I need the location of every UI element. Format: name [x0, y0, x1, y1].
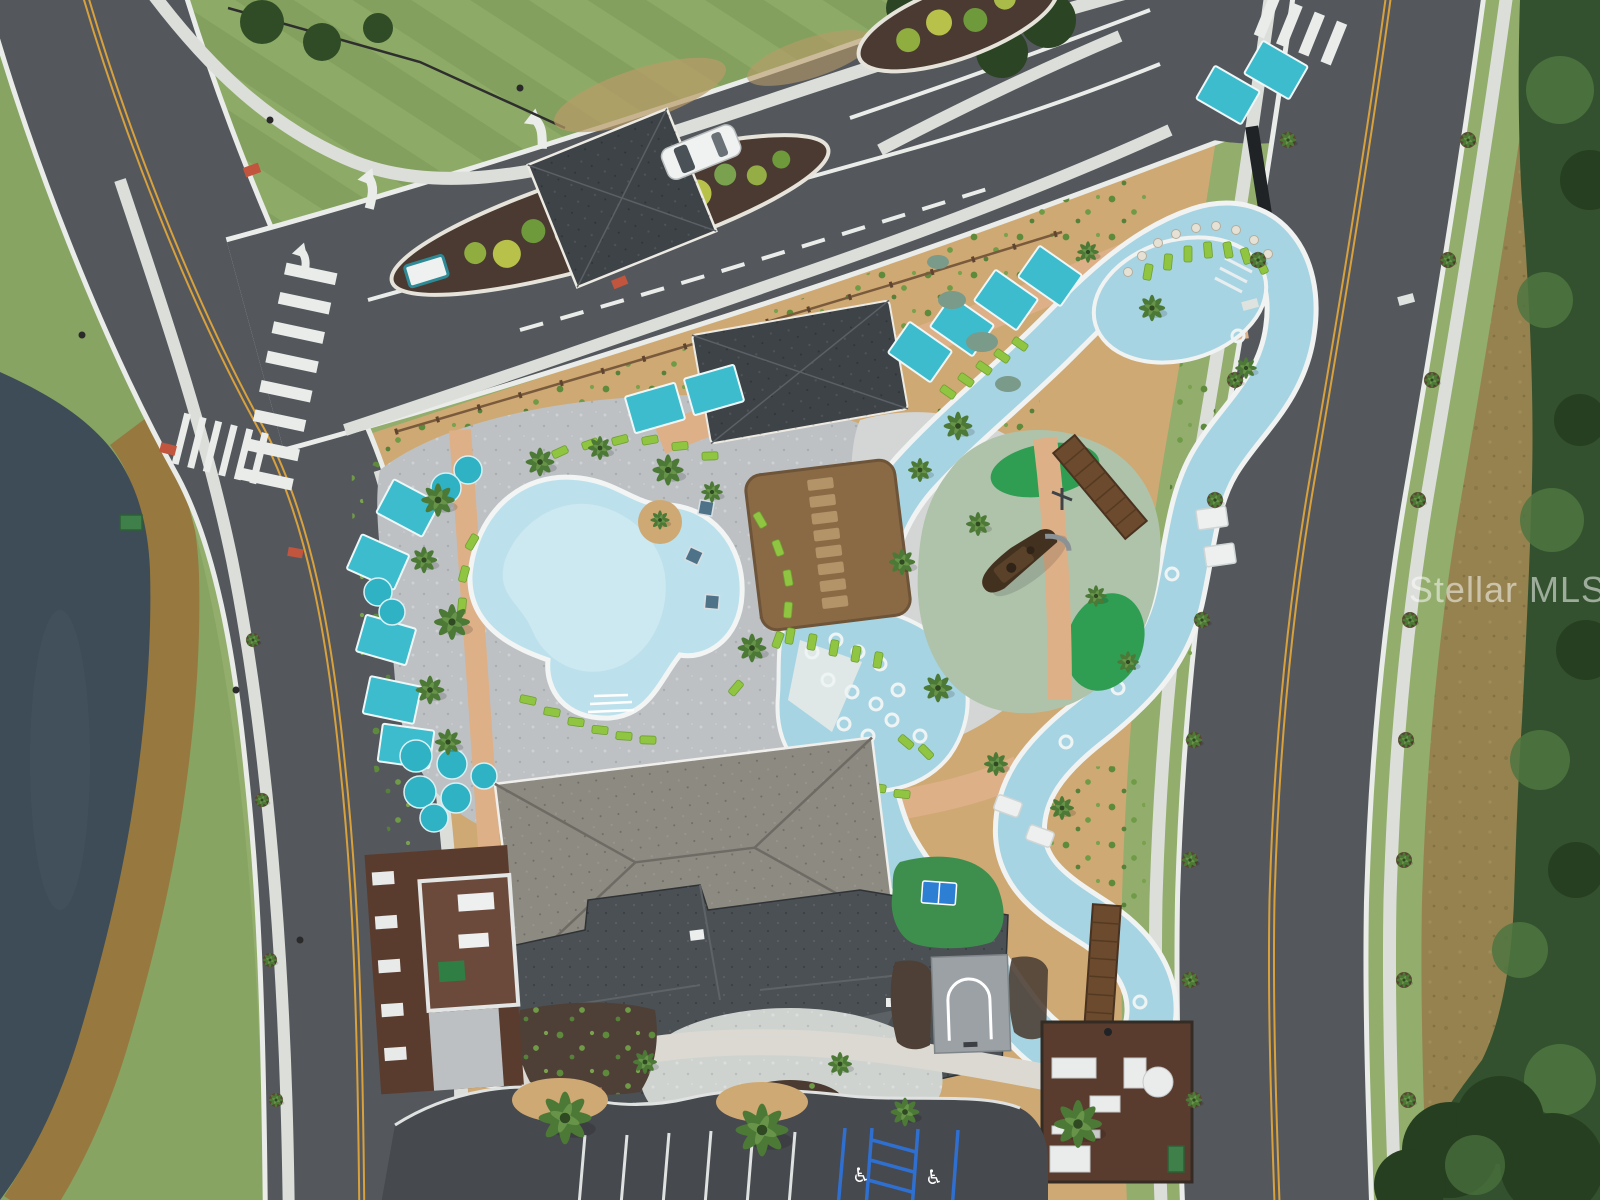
equipment-yard-west — [364, 845, 523, 1094]
table-tennis-table — [921, 881, 956, 905]
dumpster — [438, 960, 465, 982]
basketball-court — [931, 955, 1010, 1054]
aerial-photo-canvas: ♿ ♿ — [0, 0, 1600, 1200]
basketball-hoop — [963, 1042, 977, 1047]
roof-vent — [689, 929, 704, 941]
playground-island — [918, 430, 1161, 713]
utility-box — [1168, 1146, 1184, 1172]
wheelchair-symbol: ♿ — [925, 1165, 943, 1189]
aerial-photo: ♿ ♿ — [0, 0, 1600, 1200]
wheelchair-symbol: ♿ — [852, 1163, 870, 1187]
watermark: Stellar MLS — [1409, 569, 1600, 610]
tiki-hut — [744, 458, 912, 631]
utility-box — [120, 515, 142, 530]
